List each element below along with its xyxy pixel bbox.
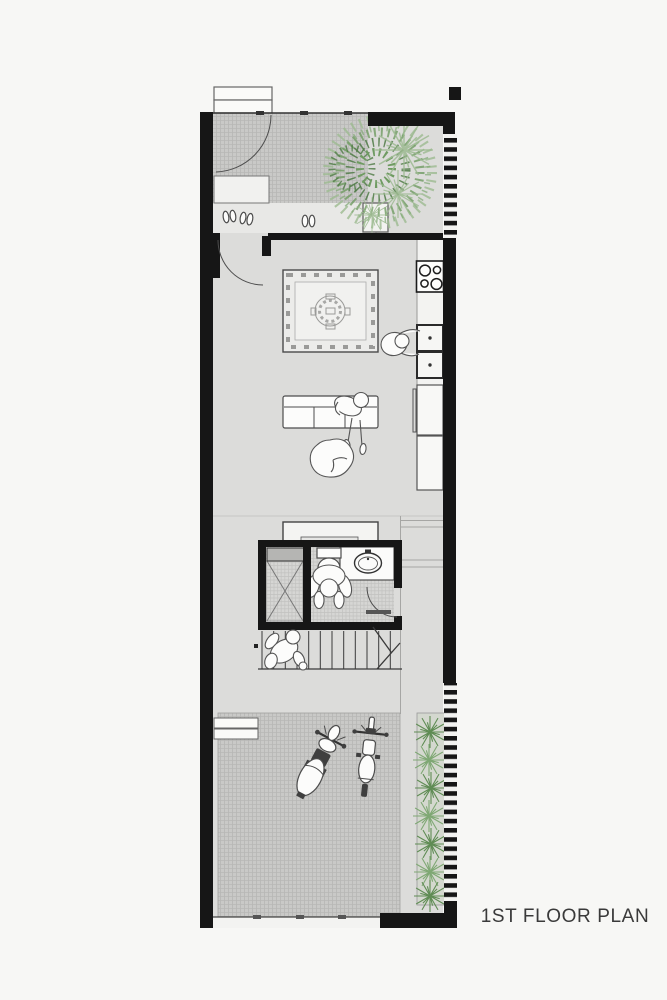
fridge	[413, 385, 443, 435]
bottom-gate	[213, 915, 380, 928]
planter-strip	[413, 713, 447, 912]
entry-steps	[214, 87, 272, 113]
kitchen-sink-icon	[417, 325, 443, 378]
shower-shelf	[267, 548, 304, 561]
floor-plan-drawing	[0, 0, 667, 1000]
entry-wall	[268, 233, 443, 240]
gate-post	[449, 87, 461, 100]
bathroom	[258, 540, 402, 630]
fence-stripes-bottom	[444, 683, 457, 901]
area-rug	[283, 270, 378, 352]
shoe-area	[213, 203, 376, 233]
bath-mat	[366, 610, 391, 614]
plan-title: 1ST FLOOR PLAN	[480, 906, 650, 928]
stove-icon	[417, 261, 444, 292]
fence-stripes-top	[444, 134, 457, 238]
bathroom-sink-icon	[340, 547, 394, 580]
floor-plan-canvas: 1ST FLOOR PLAN	[0, 0, 667, 1000]
console-table	[283, 522, 378, 543]
porch-platform	[214, 176, 269, 203]
cabinet	[417, 436, 443, 490]
garage-steps	[214, 718, 258, 739]
